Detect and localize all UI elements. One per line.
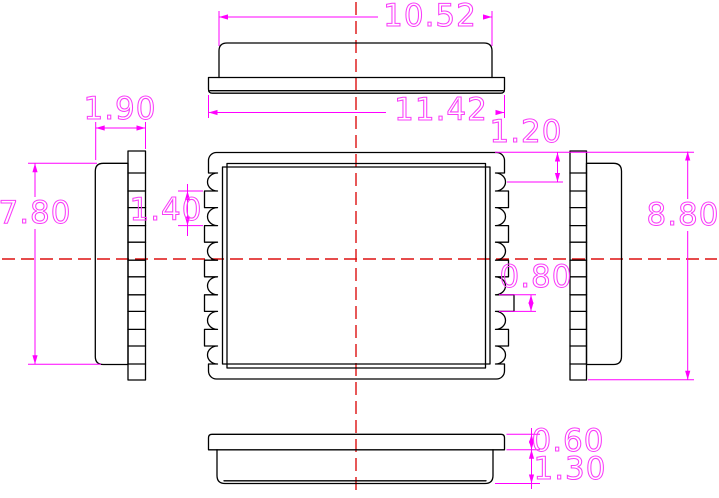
- right-side-view: [570, 151, 622, 380]
- dimension-arrowhead: [555, 173, 560, 182]
- dim-label-side-thickness: 1.90: [83, 91, 156, 127]
- dim-label-base-width: 11.42: [394, 92, 488, 128]
- left-view-lid: [95, 163, 128, 364]
- dimension-arrowhead: [685, 152, 690, 161]
- dimension-arrowhead: [209, 110, 218, 115]
- dimension-arrowhead: [219, 14, 228, 19]
- dimension-arrows: [32, 14, 690, 483]
- centerlines: [2, 2, 717, 496]
- main-plan-view: [205, 153, 515, 380]
- dim-label-overall-height: 8.80: [646, 197, 719, 233]
- dim-label-pad-length: 0.80: [499, 259, 572, 295]
- dimension-arrowhead: [685, 371, 690, 380]
- body-outline-castellated: [205, 153, 515, 380]
- dimension-arrowhead: [32, 355, 37, 364]
- dim-label-pad-pitch: 1.40: [129, 192, 202, 228]
- dim-label-edge-to-first-pad: 1.20: [489, 114, 562, 150]
- left-side-view: [95, 151, 145, 380]
- dimension-arrowhead: [483, 14, 492, 19]
- technical-drawing-canvas: 10.52 11.42 1.90 7.80 1.40 1.20 8.80 0.8…: [0, 0, 719, 498]
- right-view-lid: [587, 163, 622, 364]
- dim-label-lid-thickness: 1.30: [533, 451, 606, 487]
- dim-label-lid-height: 7.80: [0, 195, 72, 231]
- bottom-lid-profile: [217, 450, 493, 484]
- dimension-arrowhead: [32, 163, 37, 172]
- dimension-arrowhead: [528, 302, 533, 311]
- dimension-arrowhead: [555, 153, 560, 162]
- dim-label-lid-top-width: 10.52: [383, 0, 477, 34]
- dimension-labels: 10.52 11.42 1.90 7.80 1.40 1.20 8.80 0.8…: [0, 0, 719, 487]
